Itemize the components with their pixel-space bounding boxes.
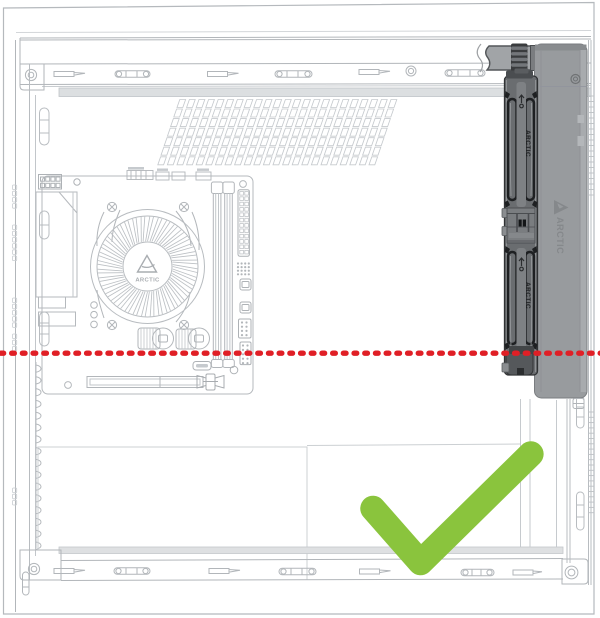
svg-text:ARCTIC: ARCTIC	[135, 278, 160, 284]
svg-text:ARCTIC: ARCTIC	[524, 130, 531, 157]
svg-text:ARCTIC: ARCTIC	[524, 282, 531, 309]
svg-text:ARCTIC: ARCTIC	[555, 217, 565, 254]
